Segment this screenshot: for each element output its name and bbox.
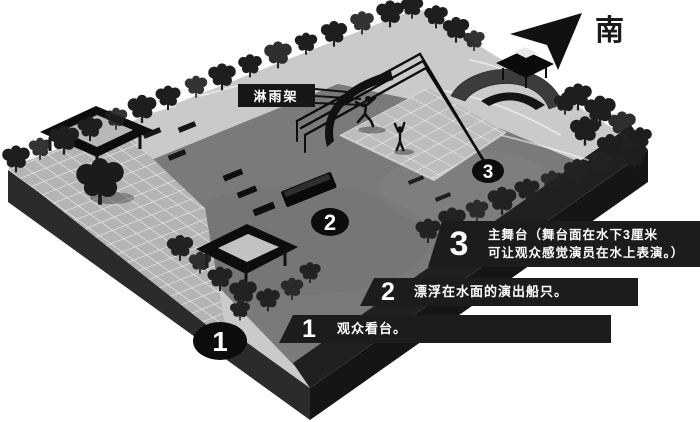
marker-1-number: 1 (212, 326, 228, 357)
sprinkler-frame-text: 淋雨架 (253, 89, 298, 104)
marker-3-number: 3 (483, 162, 494, 183)
compass-label: 南 (595, 14, 624, 47)
legend-text-2-line1: 漂浮在水面的演出船只。 (414, 283, 568, 302)
marker-3: 3 (472, 159, 504, 183)
marker-2-number: 2 (324, 210, 336, 235)
legend-item-boats: 2 漂浮在水面的演出船只。 (360, 278, 638, 306)
legend-text-3-line1: 主舞台（舞台面在水下3厘米 (488, 226, 684, 244)
legend-item-stands: 1 观众看台。 (279, 315, 611, 343)
marker-2: 2 (311, 208, 349, 236)
legend-text-3-line2: 可让观众感觉演员在水上表演。） (488, 244, 684, 262)
venue-illustration: 淋雨架 南 1 2 3 (0, 0, 700, 422)
legend-text-1: 观众看台。 (325, 320, 407, 339)
legend-text-3: 主舞台（舞台面在水下3厘米 可让观众感觉演员在水上表演。） (476, 226, 684, 262)
legend-item-main-stage: 3 主舞台（舞台面在水下3厘米 可让观众感觉演员在水上表演。） (428, 221, 700, 267)
legend-text-2: 漂浮在水面的演出船只。 (402, 283, 568, 302)
legend-text-1-line1: 观众看台。 (337, 320, 407, 339)
diagram-canvas: 淋雨架 南 1 2 3 3 主舞台（舞台面在水下3厘米 可让观众感觉演员在水上表… (0, 0, 700, 422)
marker-1: 1 (193, 322, 247, 360)
